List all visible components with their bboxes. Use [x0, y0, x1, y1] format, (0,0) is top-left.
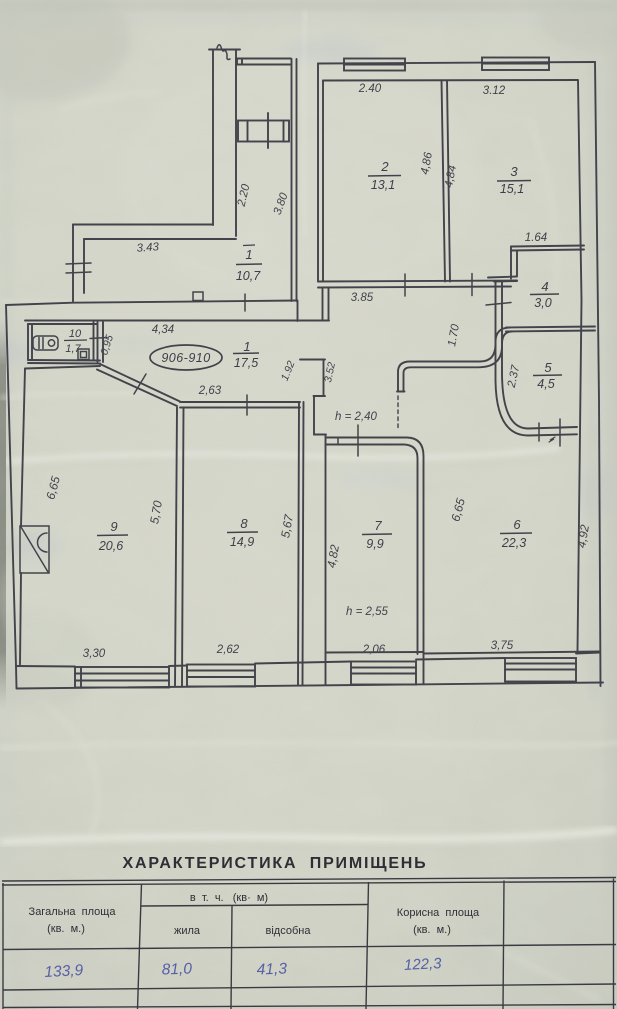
svg-text:(кв. м.): (кв. м.)	[47, 923, 85, 935]
svg-text:відсобна: відсобна	[266, 925, 312, 937]
svg-text:Загальна площа: Загальна площа	[29, 906, 117, 918]
svg-text:в т. ч. (кв· м): в т. ч. (кв· м)	[190, 892, 268, 904]
svg-text:8: 8	[240, 516, 248, 531]
svg-text:3,30: 3,30	[83, 648, 106, 660]
svg-text:4,34: 4,34	[152, 324, 174, 336]
svg-text:9,9: 9,9	[366, 537, 383, 551]
svg-text:22,3: 22,3	[501, 536, 526, 550]
svg-text:6: 6	[513, 517, 521, 532]
svg-text:2: 2	[380, 159, 389, 174]
svg-text:2.40: 2.40	[358, 83, 382, 95]
svg-text:2,06: 2,06	[362, 644, 386, 656]
svg-text:Корисна площа: Корисна площа	[397, 907, 480, 919]
svg-text:41,3: 41,3	[256, 960, 287, 978]
svg-text:10: 10	[69, 328, 82, 340]
svg-text:2,62: 2,62	[216, 644, 240, 656]
svg-text:17,5: 17,5	[234, 356, 258, 370]
svg-text:133,9: 133,9	[44, 962, 84, 981]
svg-text:2,63: 2,63	[198, 385, 222, 397]
svg-text:4,5: 4,5	[537, 377, 554, 391]
svg-text:1,7: 1,7	[65, 343, 81, 355]
svg-text:3: 3	[510, 164, 518, 179]
svg-text:81,0: 81,0	[161, 960, 192, 978]
svg-text:1: 1	[243, 339, 250, 354]
svg-text:3,75: 3,75	[491, 640, 514, 652]
svg-text:жила: жила	[174, 925, 201, 937]
svg-text:906-910: 906-910	[161, 351, 210, 365]
svg-text:9: 9	[110, 519, 117, 534]
svg-text:4: 4	[541, 279, 548, 294]
svg-text:h = 2,40: h = 2,40	[335, 411, 377, 423]
svg-text:h = 2,55: h = 2,55	[346, 606, 388, 618]
svg-text:3.85: 3.85	[351, 292, 374, 304]
svg-text:(кв. м.): (кв. м.)	[413, 924, 451, 936]
svg-text:3.12: 3.12	[483, 85, 506, 97]
svg-text:10,7: 10,7	[236, 269, 261, 283]
svg-text:20,6: 20,6	[98, 539, 123, 553]
svg-text:1: 1	[245, 247, 252, 262]
svg-text:7: 7	[374, 518, 382, 533]
svg-text:122,3: 122,3	[404, 955, 443, 974]
svg-text:14,9: 14,9	[230, 535, 254, 549]
svg-text:1.64: 1.64	[525, 232, 547, 244]
svg-text:3,0: 3,0	[534, 296, 551, 310]
svg-text:3.43: 3.43	[136, 241, 160, 255]
svg-text:ХАРАКТЕРИСТИКА ПРИМІЩЕНЬ: ХАРАКТЕРИСТИКА ПРИМІЩЕНЬ	[123, 855, 428, 872]
svg-text:13,1: 13,1	[371, 178, 395, 192]
svg-text:15,1: 15,1	[500, 182, 524, 196]
svg-text:5: 5	[544, 360, 552, 375]
